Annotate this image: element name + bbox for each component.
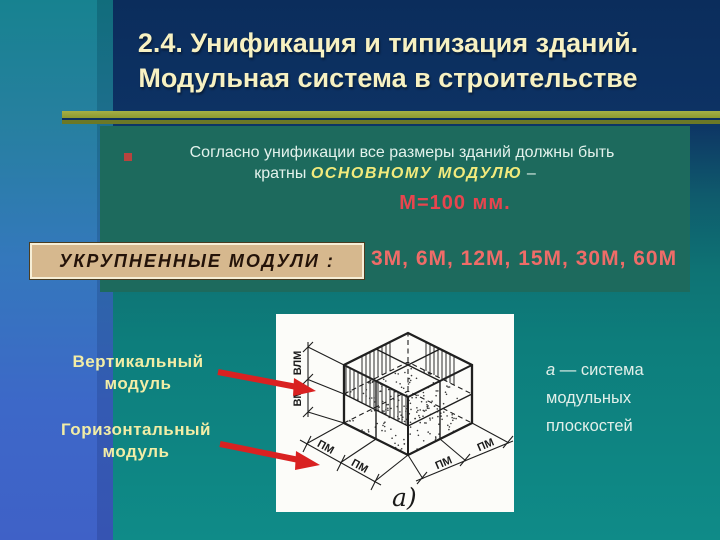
presentation-slide: 2.4. Унификация и типизация зданий. Моду… <box>0 0 720 540</box>
dim-label-pm-3: ПМ <box>434 454 454 472</box>
separator-bar-bottom <box>62 120 720 124</box>
enlarged-modules-values: 3М, 6М, 12М, 15М, 30М, 60М <box>371 247 677 271</box>
figure-caption: а — система модульных плоскостей <box>546 356 644 440</box>
dim-label-pm-2: ПМ <box>349 457 370 476</box>
basic-module-emphasis: ОСНОВНОМУ МОДУЛЮ <box>311 165 523 182</box>
bullet-text-line1: Согласно унификации все размеры зданий д… <box>120 144 684 162</box>
figure-sub-label: а) <box>392 483 417 512</box>
modular-planes-diagram: ВЛМ ВМ ПМ ПМ ПМ ПМ а) <box>276 314 514 512</box>
bullet-text-suffix: – <box>522 165 535 182</box>
title-separator <box>62 111 720 124</box>
figure-caption-line1: а — система <box>546 356 644 384</box>
slide-title-line1: 2.4. Унификация и типизация зданий. <box>82 26 694 61</box>
modular-planes-figure: ВЛМ ВМ ПМ ПМ ПМ ПМ а) <box>276 314 514 512</box>
enlarged-modules-box: УКРУПНЕННЫЕ МОДУЛИ : <box>30 243 364 279</box>
figure-caption-letter: а <box>546 361 555 379</box>
vertical-module-label-line1: Вертикальный <box>65 351 211 373</box>
slide-title: 2.4. Унификация и типизация зданий. Моду… <box>82 26 694 96</box>
bullet-text-prefix: кратны <box>254 165 311 182</box>
vertical-module-label-line2: модуль <box>65 373 211 395</box>
vertical-module-label: Вертикальный модуль <box>65 351 211 395</box>
slide-title-line2: Модульная система в строительстве <box>82 61 694 96</box>
separator-bar-top <box>62 111 720 118</box>
bullet-text-line2: кратны ОСНОВНОМУ МОДУЛЮ – <box>100 165 690 183</box>
module-value-text: М=100 мм. <box>220 192 690 215</box>
dim-label-vm: ВМ <box>292 389 304 406</box>
figure-caption-line1-rest: — система <box>555 361 643 379</box>
dim-label-vlm: ВЛМ <box>292 351 304 376</box>
dim-label-pm-4: ПМ <box>476 436 496 454</box>
horizontal-module-label-line1: Горизонтальный <box>58 419 214 441</box>
dim-label-pm-1: ПМ <box>315 438 336 457</box>
horizontal-module-label: Горизонтальный модуль <box>58 419 214 463</box>
horizontal-module-label-line2: модуль <box>58 441 214 463</box>
figure-caption-line2: модульных <box>546 384 644 412</box>
figure-caption-line3: плоскостей <box>546 412 644 440</box>
